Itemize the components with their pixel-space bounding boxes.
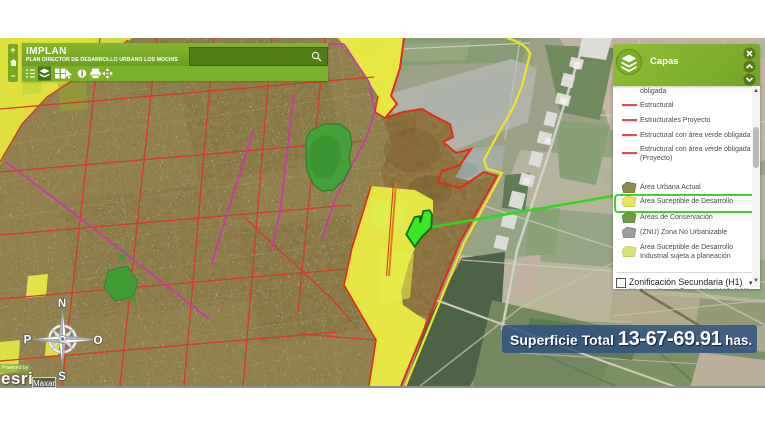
svg-text:O: O: [94, 335, 103, 347]
svg-text:N: N: [58, 298, 66, 310]
svg-text:P: P: [24, 335, 32, 347]
